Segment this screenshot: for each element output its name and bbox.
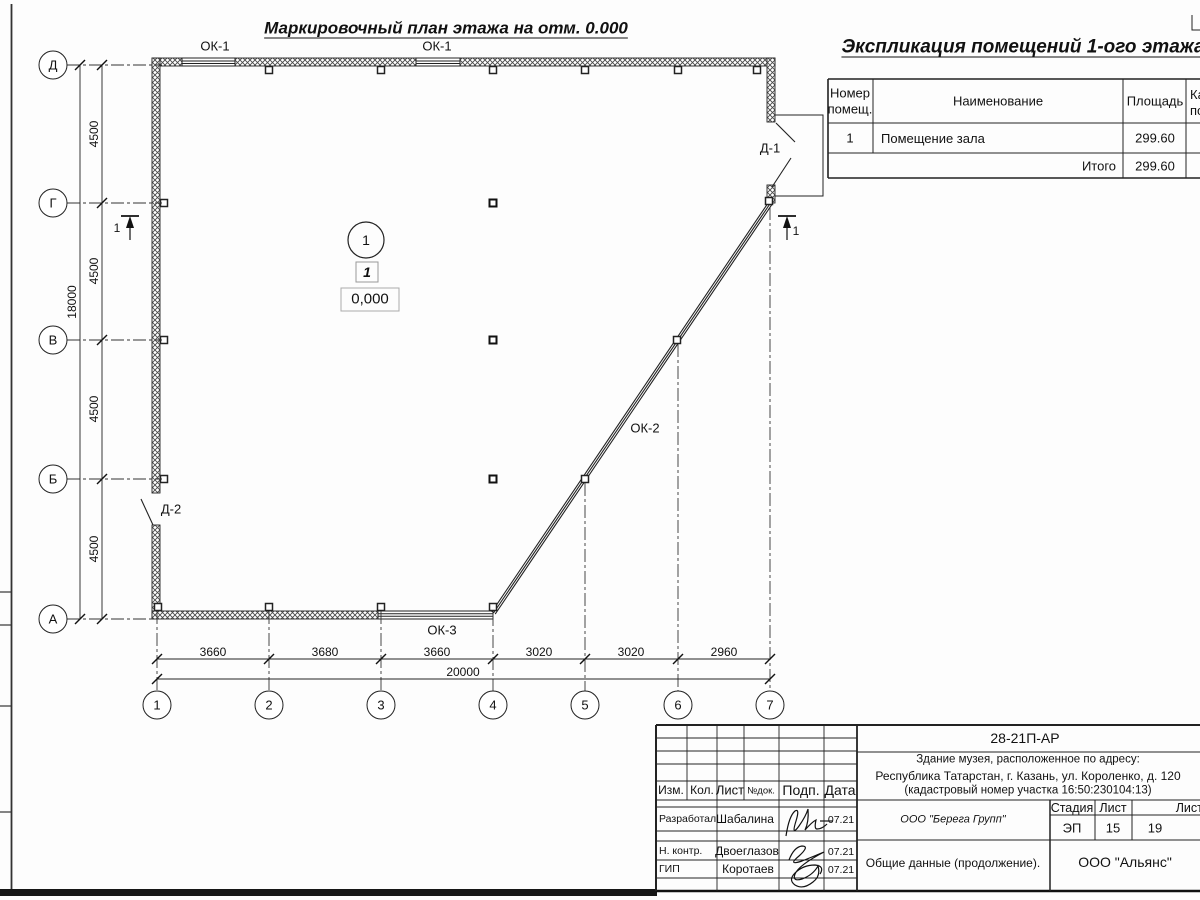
room-number-circle: 1 xyxy=(362,233,370,247)
dim-bottom-4: 3020 xyxy=(526,646,553,658)
axis-row-a: А xyxy=(49,613,58,626)
stamp-col-ndok: №док. xyxy=(747,786,775,796)
axis-col-2: 2 xyxy=(265,699,272,712)
axis-col-5: 5 xyxy=(581,699,588,712)
section-mark-label-right: 1 xyxy=(793,225,800,237)
plan-title: Маркировочный план этажа на отм. 0.000 xyxy=(264,20,628,37)
sign-role-2: Н. контр. xyxy=(659,846,702,857)
address-line2: Республика Татарстан, г. Казань, ул. Кор… xyxy=(875,770,1180,782)
doc-title: Общие данные (продолжение). xyxy=(866,857,1040,869)
dim-left-3: 4500 xyxy=(88,396,100,423)
sign-role-1: Разработал xyxy=(659,814,716,825)
sheet-label: Лист xyxy=(1099,802,1126,815)
label-ok1-a: ОК-1 xyxy=(200,40,229,53)
sheets-label: Листов xyxy=(1176,802,1200,815)
sign-name-3: Коротаев xyxy=(722,863,774,875)
sign-name-1: Шабалина xyxy=(716,813,774,825)
dimension-ticks xyxy=(75,60,775,684)
axis-col-3: 3 xyxy=(377,699,384,712)
window-ok1-b xyxy=(416,58,460,66)
stamp-col-data: Дата xyxy=(824,783,855,797)
sheets-value: 19 xyxy=(1148,822,1162,835)
dim-bottom-2: 3680 xyxy=(312,646,339,658)
label-ok3: ОК-3 xyxy=(427,624,456,637)
window-ok3 xyxy=(378,611,493,619)
explication-col-cat: Ка xyxy=(1190,88,1200,101)
sign-role-3: ГИП xyxy=(659,864,680,875)
dim-left-2: 4500 xyxy=(88,258,100,285)
stage-value: ЭП xyxy=(1063,822,1082,835)
label-ok2: ОК-2 xyxy=(630,422,659,435)
dim-left-1: 4500 xyxy=(88,121,100,148)
sign-date-3: 07.21 xyxy=(828,865,854,876)
elevation-mark: 0,000 xyxy=(351,292,389,307)
window-ok2-diagonal xyxy=(492,202,772,614)
label-d1: Д-1 xyxy=(760,142,780,155)
explication-row-num: 1 xyxy=(846,132,853,145)
porch-outline xyxy=(775,115,823,196)
axis-row-v: В xyxy=(49,334,58,347)
sign-name-2: Двоеглазов xyxy=(715,845,779,857)
axis-lines xyxy=(67,65,770,691)
window-ok1-a xyxy=(182,58,235,66)
axis-row-d: Д xyxy=(49,59,58,72)
dim-bottom-6: 2960 xyxy=(711,646,738,658)
sheet-value: 15 xyxy=(1106,822,1120,835)
doc-number: 28-21П-АР xyxy=(990,731,1059,745)
explication-row-name: Помещение зала xyxy=(881,132,985,145)
axis-col-7: 7 xyxy=(766,699,773,712)
dim-bottom-total: 20000 xyxy=(446,666,479,678)
axis-row-g: Г xyxy=(49,197,56,210)
dim-left-4: 4500 xyxy=(88,536,100,563)
explication-total-label: Итого xyxy=(1082,160,1116,173)
room-number-box: 1 xyxy=(363,265,371,279)
designer-org: ООО "Берега Групп" xyxy=(900,815,1005,826)
stamp-col-podp: Подп. xyxy=(782,783,819,797)
axis-col-1: 1 xyxy=(153,699,160,712)
section-mark-label-left: 1 xyxy=(114,222,121,234)
dim-bottom-5: 3020 xyxy=(618,646,645,658)
dimension-lines xyxy=(80,65,770,679)
explication-col-cat2: по xyxy=(1190,104,1200,117)
axis-row-b: Б xyxy=(49,473,58,486)
axis-col-4: 4 xyxy=(489,699,496,712)
explication-total-value: 299.60 xyxy=(1135,160,1175,173)
label-d2: Д-2 xyxy=(161,503,181,516)
dim-bottom-3: 3660 xyxy=(424,646,451,658)
section-marks xyxy=(121,216,796,240)
axis-col-6: 6 xyxy=(674,699,681,712)
sign-date-2: 07.21 xyxy=(828,847,854,858)
explication-col-num2: помещ. xyxy=(828,103,873,116)
explication-title: Экспликация помещений 1-ого этажа xyxy=(841,38,1200,57)
stamp-col-kol: Кол. xyxy=(690,784,714,796)
explication-col-name: Наименование xyxy=(953,95,1043,108)
explication-col-num: Номер xyxy=(830,87,870,100)
stage-label: Стадия xyxy=(1051,802,1094,815)
stamp-col-izm: Изм. xyxy=(658,784,684,796)
door-d2-leaf xyxy=(141,499,153,525)
address-line1: Здание музея, расположенное по адресу: xyxy=(916,754,1140,766)
interior-columns xyxy=(490,200,497,483)
drawing-sheet: Маркировочный план этажа на отм. 0.000 О… xyxy=(0,0,1200,900)
explication-row-area: 299.60 xyxy=(1135,132,1175,145)
explication-col-area: Площадь xyxy=(1127,95,1184,108)
company-name: ООО "Альянс" xyxy=(1078,855,1172,869)
label-ok1-b: ОК-1 xyxy=(422,40,451,53)
signatures xyxy=(786,809,833,887)
address-line3: (кадастровый номер участка 16:50:230104:… xyxy=(904,785,1151,797)
sign-date-1: 07.21 xyxy=(828,815,854,826)
wall-pilasters xyxy=(155,67,773,611)
dim-bottom-1: 3660 xyxy=(200,646,227,658)
stamp-col-list: Лист xyxy=(716,784,744,797)
dim-left-total: 18000 xyxy=(66,285,78,318)
